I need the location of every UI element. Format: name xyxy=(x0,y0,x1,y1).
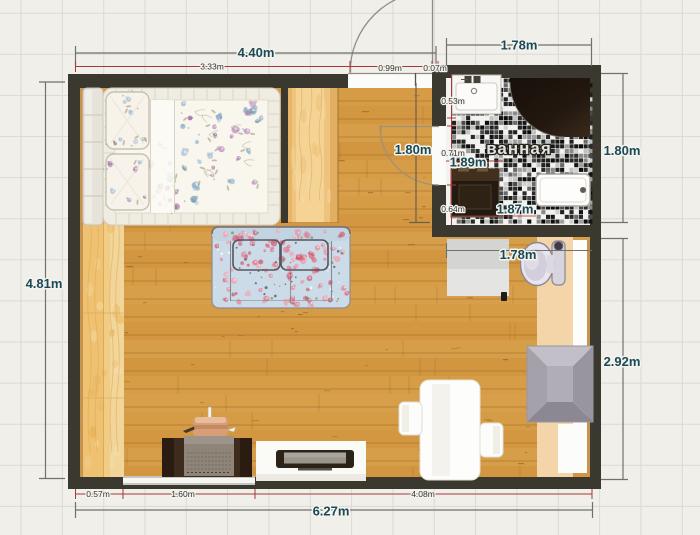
svg-text:1.89m: 1.89m xyxy=(450,155,487,170)
svg-text:0.64m: 0.64m xyxy=(441,204,465,214)
svg-text:0.53m: 0.53m xyxy=(441,96,465,106)
svg-text:4.08m: 4.08m xyxy=(411,489,435,499)
svg-text:1.78m: 1.78m xyxy=(501,38,538,53)
svg-text:0.99m: 0.99m xyxy=(378,63,402,73)
svg-text:4.40m: 4.40m xyxy=(238,45,275,60)
svg-text:ванная: ванная xyxy=(486,139,552,158)
svg-text:4.81m: 4.81m xyxy=(26,276,63,291)
svg-text:1.80m: 1.80m xyxy=(395,142,432,157)
svg-text:1.78m: 1.78m xyxy=(500,247,537,262)
svg-text:3.33m: 3.33m xyxy=(200,62,224,72)
svg-text:1.60m: 1.60m xyxy=(171,489,195,499)
svg-text:2.92m: 2.92m xyxy=(604,354,641,369)
svg-text:1.80m: 1.80m xyxy=(604,143,641,158)
svg-text:0.07m: 0.07m xyxy=(423,63,447,73)
svg-text:1.87m: 1.87m xyxy=(497,202,534,217)
svg-text:0.57m: 0.57m xyxy=(86,489,110,499)
svg-text:6.27m: 6.27m xyxy=(313,504,350,519)
